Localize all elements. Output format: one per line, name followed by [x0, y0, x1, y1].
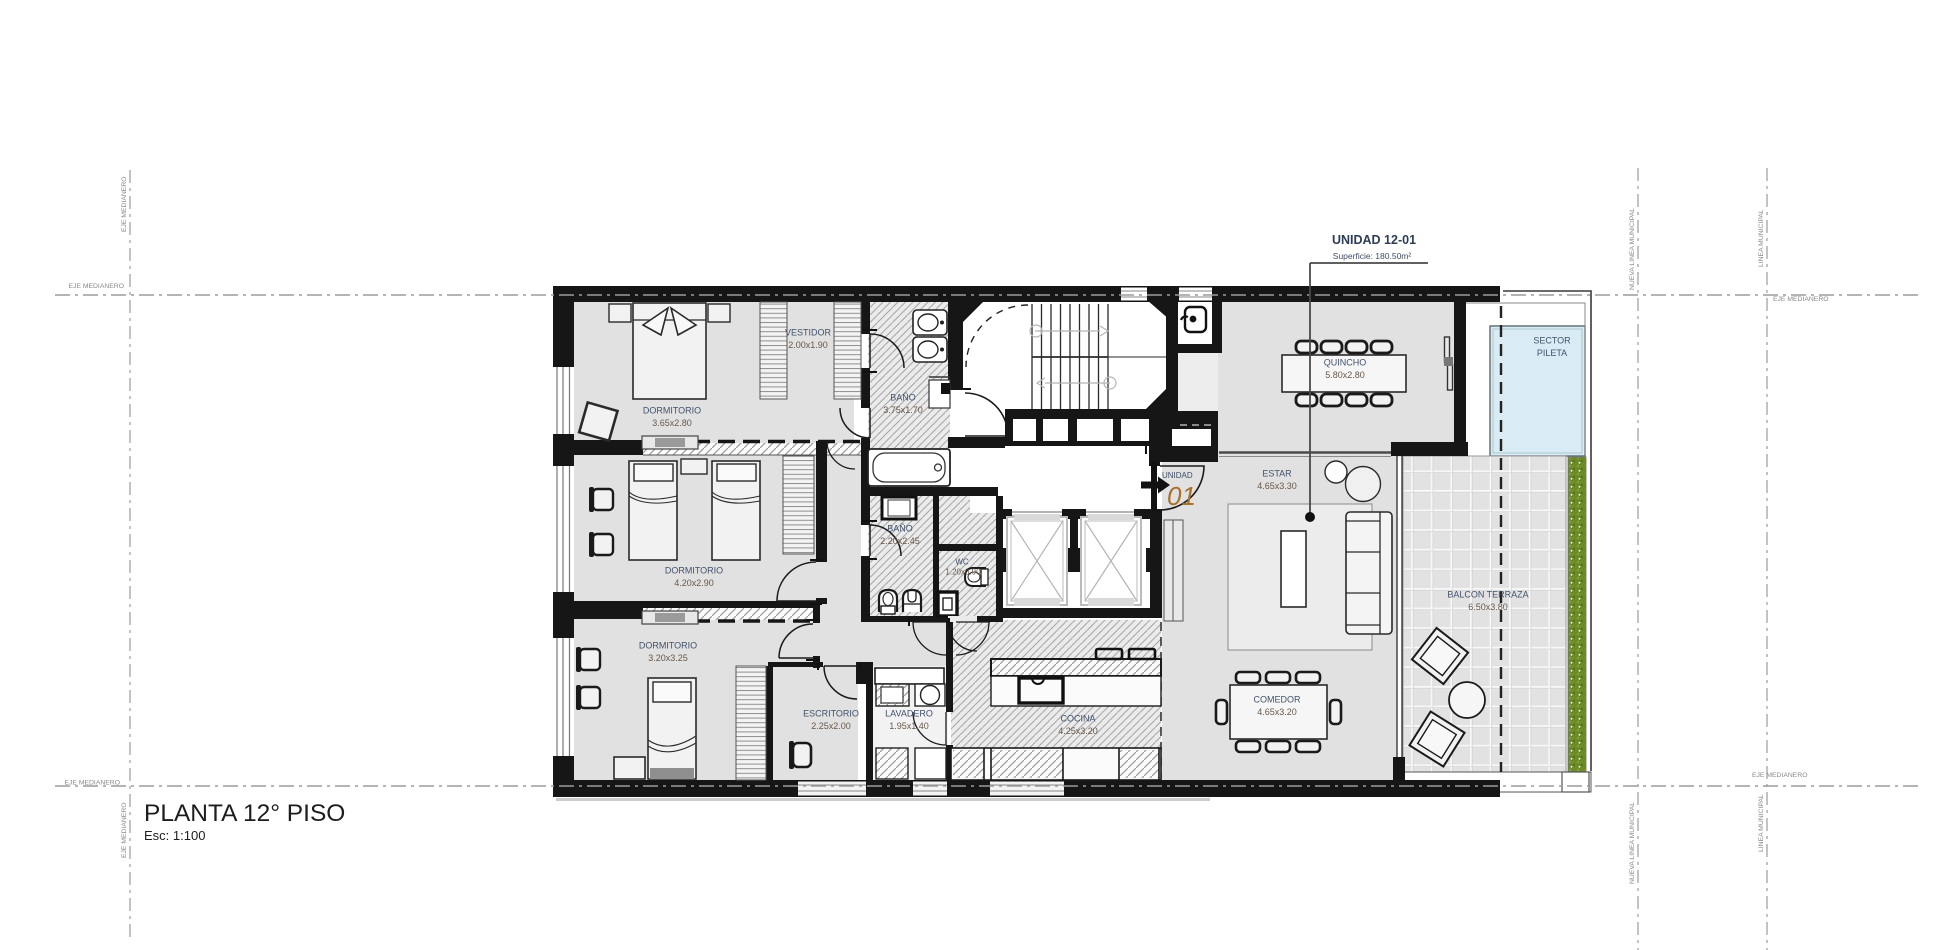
svg-text:ESTAR: ESTAR — [1262, 469, 1292, 479]
svg-text:QUINCHO: QUINCHO — [1324, 358, 1367, 368]
svg-text:BAÑO: BAÑO — [887, 524, 913, 534]
svg-text:BALCON TERRAZA: BALCON TERRAZA — [1447, 590, 1528, 600]
svg-text:BAÑO: BAÑO — [890, 393, 916, 403]
svg-text:UNIDAD 12-01: UNIDAD 12-01 — [1332, 233, 1416, 247]
svg-text:NUEVA LINEA MUNICIPAL: NUEVA LINEA MUNICIPAL — [1629, 208, 1636, 290]
svg-text:DORMITORIO: DORMITORIO — [643, 406, 701, 416]
svg-text:SECTOR: SECTOR — [1533, 336, 1571, 346]
svg-text:DORMITORIO: DORMITORIO — [665, 566, 723, 576]
svg-text:LINEA MUNICIPAL: LINEA MUNICIPAL — [1758, 209, 1765, 267]
svg-text:EJE MEDIANERO: EJE MEDIANERO — [1773, 296, 1829, 303]
svg-text:UNIDAD: UNIDAD — [1162, 471, 1193, 480]
svg-text:4.65x3.20: 4.65x3.20 — [1257, 707, 1297, 717]
svg-text:1.95x1.40: 1.95x1.40 — [889, 721, 929, 731]
svg-text:4.20x2.90: 4.20x2.90 — [674, 578, 714, 588]
svg-text:Esc: 1:100: Esc: 1:100 — [144, 828, 205, 843]
svg-text:VESTIDOR: VESTIDOR — [785, 328, 832, 338]
svg-text:LAVADERO: LAVADERO — [885, 709, 933, 719]
svg-text:WC: WC — [955, 558, 969, 567]
svg-text:1.20x0.90: 1.20x0.90 — [945, 568, 981, 577]
svg-text:PILETA: PILETA — [1537, 348, 1567, 358]
svg-text:3.20x3.25: 3.20x3.25 — [648, 653, 688, 663]
svg-text:2.00x1.90: 2.00x1.90 — [788, 340, 828, 350]
svg-text:6.50x3.80: 6.50x3.80 — [1468, 602, 1508, 612]
svg-text:NUEVA LINEA MUNICIPAL: NUEVA LINEA MUNICIPAL — [1629, 802, 1636, 884]
svg-text:3.75x1.70: 3.75x1.70 — [883, 405, 923, 415]
svg-text:2.25x2.00: 2.25x2.00 — [811, 721, 851, 731]
svg-text:LINEA MUNICIPAL: LINEA MUNICIPAL — [1758, 794, 1765, 852]
svg-text:2.20x2.45: 2.20x2.45 — [880, 536, 920, 546]
svg-text:PLANTA 12° PISO: PLANTA 12° PISO — [144, 800, 345, 827]
svg-text:EJE MEDIANERO: EJE MEDIANERO — [68, 283, 124, 290]
svg-text:4.25x3.20: 4.25x3.20 — [1058, 726, 1098, 736]
svg-text:COCINA: COCINA — [1060, 714, 1095, 724]
svg-text:ESCRITORIO: ESCRITORIO — [803, 709, 859, 719]
svg-text:5.80x2.80: 5.80x2.80 — [1325, 370, 1365, 380]
svg-text:Superficie: 180.50m²: Superficie: 180.50m² — [1333, 251, 1412, 261]
svg-text:4.65x3.30: 4.65x3.30 — [1257, 481, 1297, 491]
svg-text:EJE MEDIANERO: EJE MEDIANERO — [1752, 772, 1808, 779]
svg-text:EJE MEDIANERO: EJE MEDIANERO — [121, 176, 128, 232]
svg-text:EJE MEDIANERO: EJE MEDIANERO — [121, 802, 128, 858]
svg-text:3.65x2.80: 3.65x2.80 — [652, 418, 692, 428]
svg-text:01: 01 — [1167, 481, 1196, 511]
svg-text:EJE MEDIANERO: EJE MEDIANERO — [64, 780, 120, 787]
svg-text:COMEDOR: COMEDOR — [1254, 695, 1302, 705]
svg-text:DORMITORIO: DORMITORIO — [639, 641, 697, 651]
